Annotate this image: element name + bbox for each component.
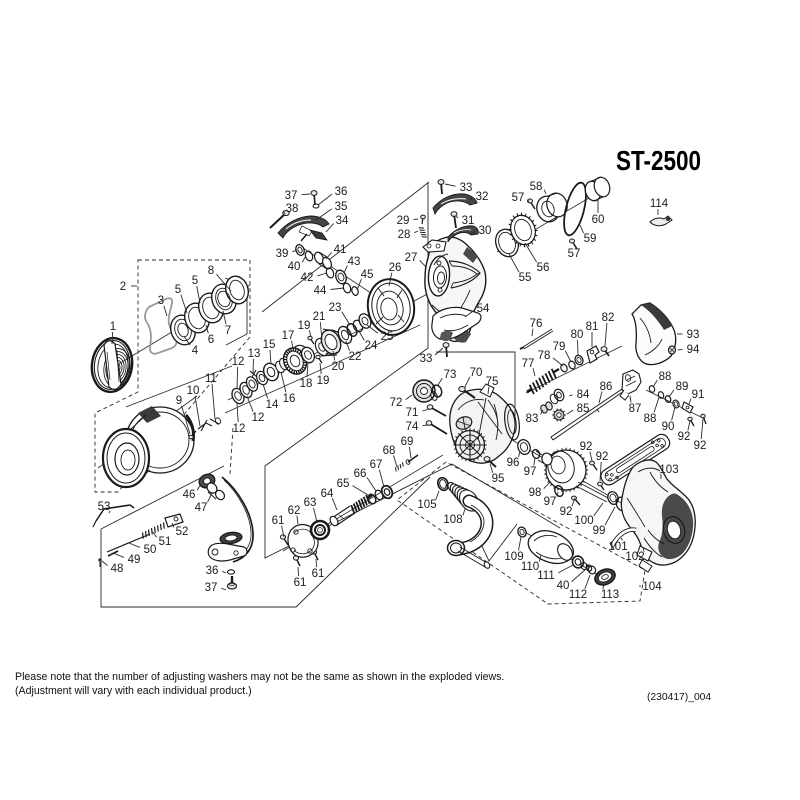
svg-text:92: 92 [580, 441, 593, 453]
svg-text:96: 96 [507, 457, 520, 469]
svg-text:45: 45 [361, 269, 374, 281]
svg-text:78: 78 [538, 350, 551, 362]
svg-text:58: 58 [530, 181, 543, 193]
svg-text:53: 53 [98, 501, 111, 513]
svg-text:92: 92 [560, 506, 573, 518]
svg-text:30: 30 [479, 225, 492, 237]
svg-text:43: 43 [348, 256, 361, 268]
svg-text:99: 99 [593, 525, 606, 537]
svg-text:5: 5 [192, 275, 198, 287]
svg-text:21: 21 [313, 311, 326, 323]
svg-text:92: 92 [596, 451, 609, 463]
svg-text:60: 60 [592, 214, 605, 226]
svg-text:52: 52 [176, 526, 189, 538]
svg-text:20: 20 [332, 361, 345, 373]
svg-text:6: 6 [208, 334, 214, 346]
svg-text:29: 29 [397, 215, 410, 227]
svg-text:103: 103 [659, 464, 678, 476]
svg-text:97: 97 [544, 496, 557, 508]
svg-text:87: 87 [629, 403, 642, 415]
svg-text:100: 100 [574, 515, 593, 527]
svg-text:19: 19 [317, 375, 330, 387]
svg-text:69: 69 [401, 436, 414, 448]
svg-text:61: 61 [312, 568, 325, 580]
svg-text:57: 57 [512, 192, 525, 204]
svg-text:83: 83 [526, 413, 539, 425]
svg-text:85: 85 [577, 403, 590, 415]
svg-text:88: 88 [659, 371, 672, 383]
svg-text:74: 74 [406, 421, 419, 433]
svg-text:104: 104 [642, 581, 662, 593]
svg-text:37: 37 [205, 582, 218, 594]
svg-text:4: 4 [192, 345, 199, 357]
svg-text:24: 24 [365, 340, 378, 352]
svg-text:2: 2 [120, 281, 126, 293]
svg-text:75: 75 [486, 376, 499, 388]
svg-text:1: 1 [110, 321, 116, 333]
svg-text:13: 13 [248, 348, 261, 360]
svg-text:112: 112 [569, 589, 587, 601]
svg-text:16: 16 [283, 393, 296, 405]
svg-text:5: 5 [175, 284, 181, 296]
svg-text:32: 32 [476, 191, 489, 203]
svg-text:9: 9 [176, 395, 182, 407]
svg-text:114: 114 [650, 198, 669, 210]
svg-text:15: 15 [263, 339, 276, 351]
svg-text:102: 102 [625, 551, 644, 563]
svg-text:89: 89 [676, 381, 689, 393]
svg-text:72: 72 [390, 397, 403, 409]
svg-text:94: 94 [687, 344, 700, 356]
svg-text:12: 12 [233, 423, 246, 435]
svg-text:82: 82 [602, 312, 615, 324]
svg-text:14: 14 [266, 399, 279, 411]
svg-text:98: 98 [529, 487, 542, 499]
svg-text:17: 17 [282, 330, 295, 342]
svg-text:36: 36 [335, 186, 348, 198]
svg-text:81: 81 [586, 321, 599, 333]
svg-text:11: 11 [205, 373, 217, 385]
svg-text:44: 44 [314, 285, 327, 297]
svg-text:88: 88 [644, 413, 657, 425]
svg-text:50: 50 [144, 544, 157, 556]
svg-text:97: 97 [524, 466, 537, 478]
svg-text:54: 54 [477, 303, 490, 315]
svg-text:113: 113 [601, 589, 619, 601]
svg-text:67: 67 [370, 459, 383, 471]
svg-text:73: 73 [444, 369, 457, 381]
svg-text:10: 10 [187, 385, 200, 397]
svg-text:26: 26 [389, 262, 402, 274]
svg-text:28: 28 [398, 229, 411, 241]
svg-text:Please note that the number of: Please note that the number of adjusting… [15, 671, 504, 683]
svg-text:47: 47 [195, 502, 208, 514]
svg-text:61: 61 [272, 515, 285, 527]
svg-text:3: 3 [158, 295, 164, 307]
svg-text:51: 51 [159, 536, 172, 548]
svg-text:80: 80 [571, 329, 584, 341]
svg-text:71: 71 [406, 407, 419, 419]
svg-text:(Adjustment will vary with eac: (Adjustment will vary with each individu… [15, 685, 252, 697]
svg-text:39: 39 [276, 248, 289, 260]
svg-text:ST-2500: ST-2500 [616, 145, 701, 176]
svg-text:12: 12 [252, 412, 265, 424]
svg-text:41: 41 [334, 244, 347, 256]
svg-text:12: 12 [232, 356, 245, 368]
svg-text:90: 90 [662, 421, 675, 433]
svg-text:57: 57 [568, 248, 581, 260]
svg-text:18: 18 [300, 378, 313, 390]
svg-text:48: 48 [111, 563, 124, 575]
svg-text:86: 86 [600, 381, 613, 393]
svg-text:55: 55 [519, 272, 532, 284]
svg-text:91: 91 [692, 389, 705, 401]
svg-text:105: 105 [417, 499, 436, 511]
svg-text:46: 46 [183, 489, 196, 501]
svg-text:40: 40 [288, 261, 301, 273]
svg-text:63: 63 [304, 497, 317, 509]
svg-text:27: 27 [405, 252, 418, 264]
svg-text:36: 36 [206, 565, 219, 577]
svg-text:111: 111 [537, 570, 554, 582]
svg-text:34: 34 [336, 215, 349, 227]
svg-text:38: 38 [286, 203, 299, 215]
svg-text:19: 19 [298, 320, 311, 332]
svg-text:93: 93 [687, 329, 700, 341]
svg-text:92: 92 [678, 431, 691, 443]
svg-text:23: 23 [329, 302, 342, 314]
svg-text:56: 56 [537, 262, 550, 274]
svg-text:108: 108 [443, 514, 462, 526]
svg-text:(230417)_004: (230417)_004 [647, 692, 711, 703]
svg-text:64: 64 [321, 488, 334, 500]
svg-text:65: 65 [337, 478, 350, 490]
svg-text:8: 8 [208, 265, 214, 277]
svg-text:33: 33 [420, 353, 433, 365]
svg-text:40: 40 [557, 580, 570, 592]
svg-text:7: 7 [225, 325, 231, 337]
svg-text:49: 49 [128, 554, 141, 566]
svg-text:35: 35 [335, 201, 348, 213]
svg-text:95: 95 [492, 473, 505, 485]
svg-text:33: 33 [460, 182, 473, 194]
svg-text:79: 79 [553, 341, 566, 353]
svg-text:84: 84 [577, 389, 590, 401]
svg-text:61: 61 [294, 577, 307, 589]
svg-text:68: 68 [383, 445, 396, 457]
svg-text:92: 92 [694, 440, 707, 452]
svg-text:62: 62 [288, 505, 301, 517]
svg-text:42: 42 [301, 272, 314, 284]
svg-text:70: 70 [470, 367, 483, 379]
svg-text:76: 76 [530, 318, 543, 330]
svg-text:66: 66 [354, 468, 367, 480]
svg-text:37: 37 [285, 190, 298, 202]
svg-text:59: 59 [584, 233, 597, 245]
svg-text:31: 31 [462, 215, 475, 227]
svg-text:77: 77 [522, 358, 535, 370]
svg-text:25: 25 [381, 331, 394, 343]
svg-text:22: 22 [349, 351, 362, 363]
